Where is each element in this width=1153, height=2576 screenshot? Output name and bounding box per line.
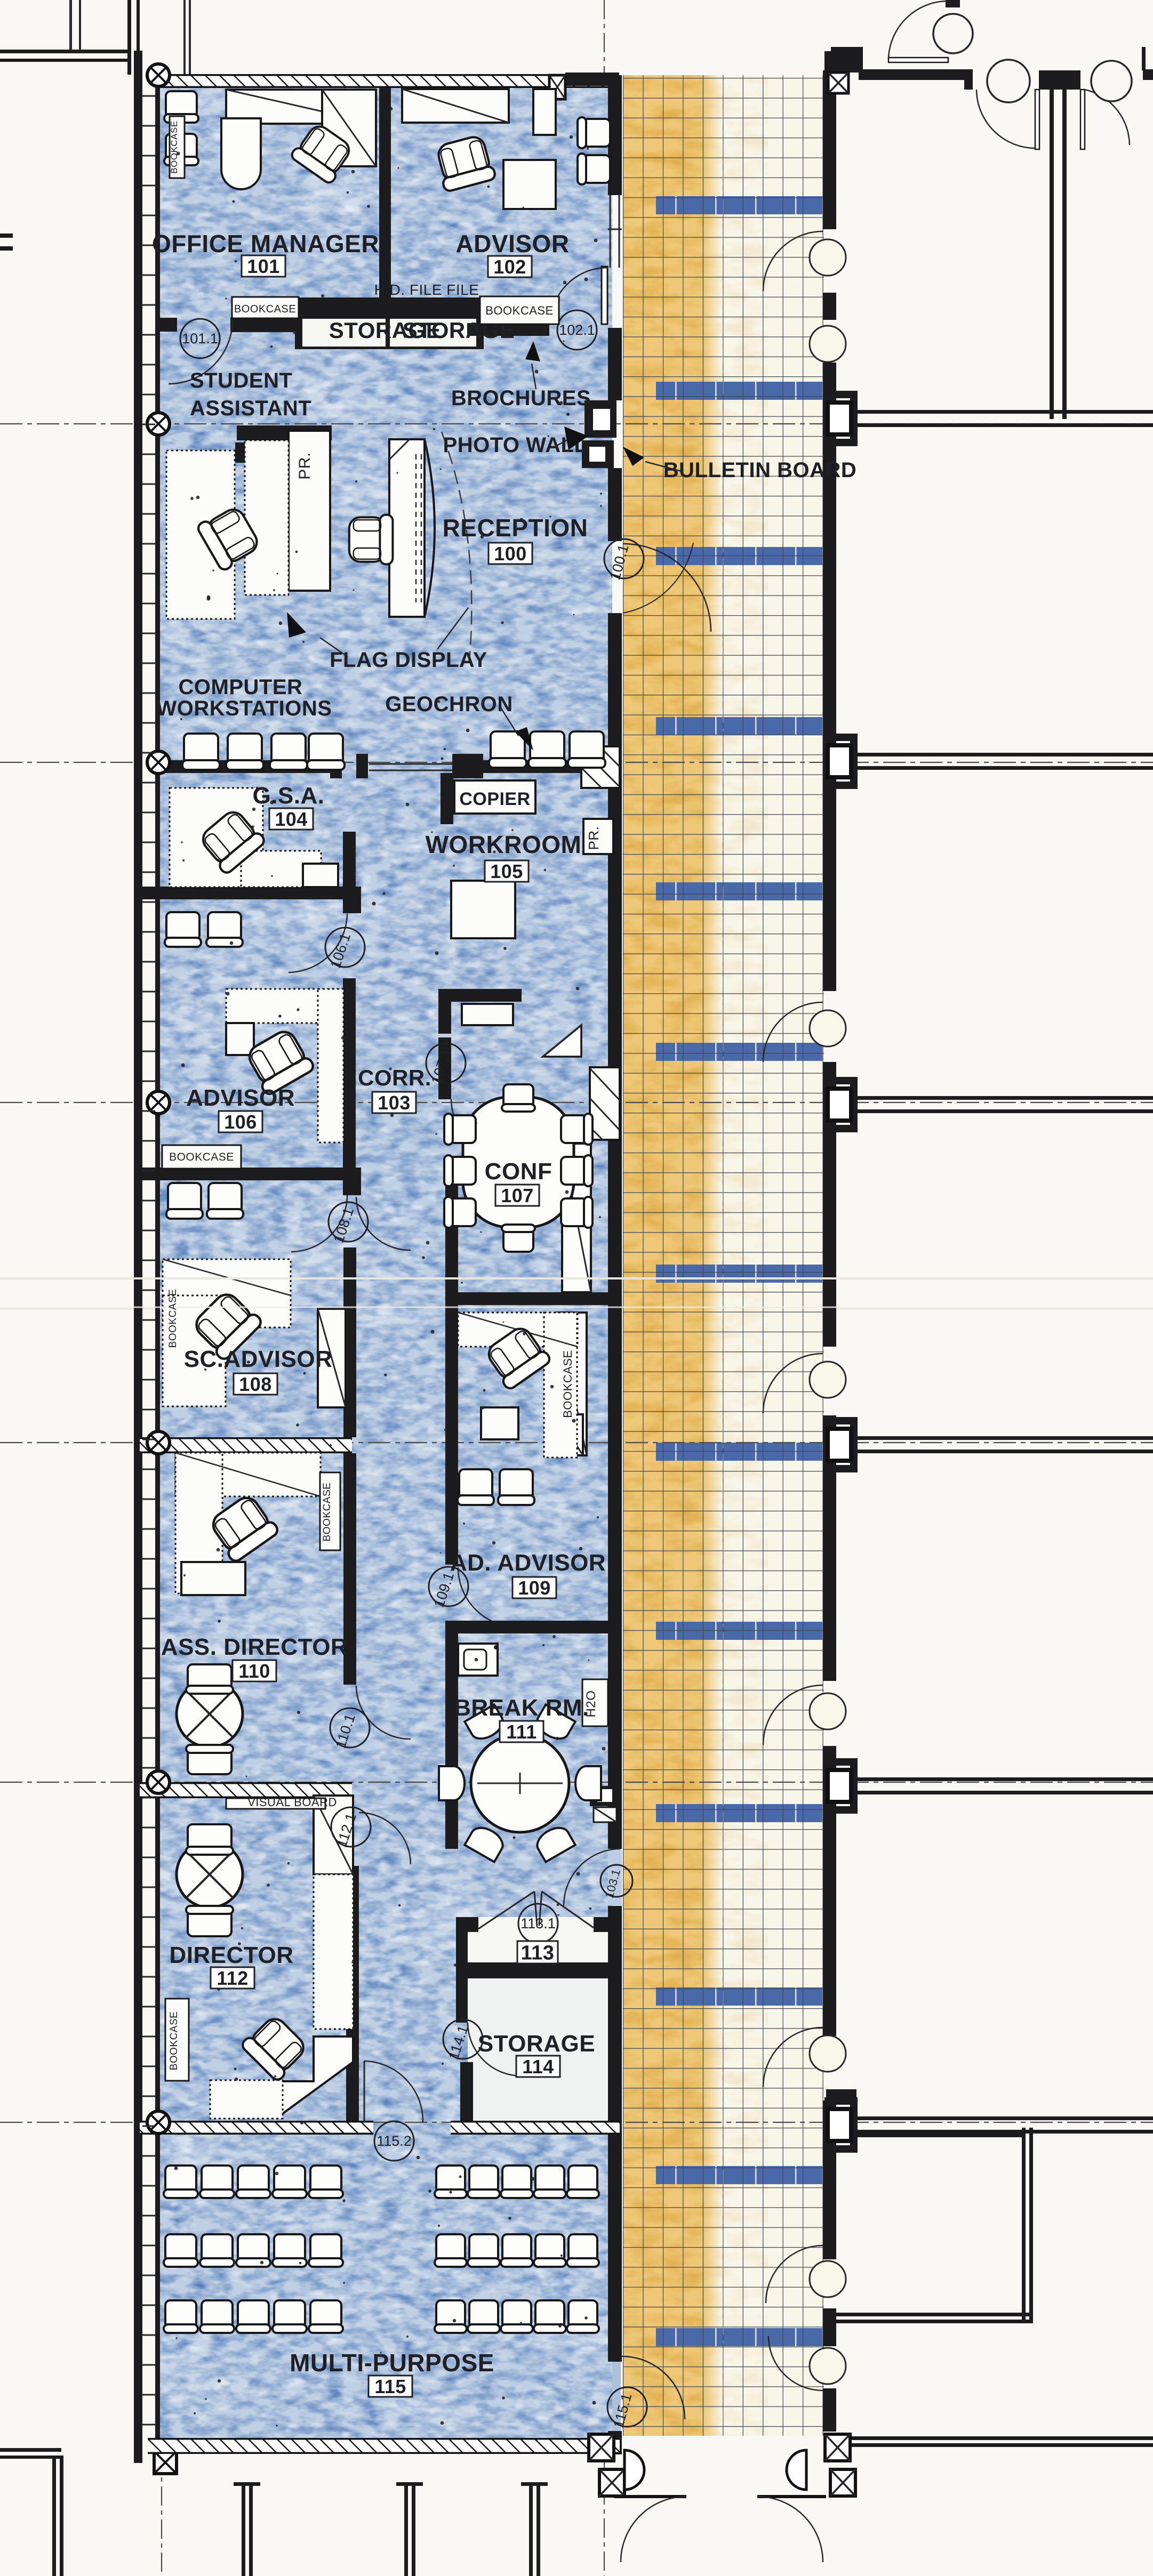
svg-text:112: 112 — [217, 1967, 249, 1989]
svg-text:BOOKCASE: BOOKCASE — [322, 1483, 333, 1542]
svg-text:STORAGE: STORAGE — [478, 2031, 595, 2057]
svg-text:101.1: 101.1 — [182, 331, 218, 347]
svg-text:ASSISTANT: ASSISTANT — [190, 397, 311, 420]
svg-text:110: 110 — [238, 1660, 270, 1682]
svg-text:WORKSTATIONS: WORKSTATIONS — [157, 697, 332, 720]
svg-text:ASS. DIRECTOR: ASS. DIRECTOR — [161, 1634, 348, 1660]
svg-text:BOOKCASE: BOOKCASE — [169, 1151, 234, 1163]
svg-text:BOOKCASE: BOOKCASE — [167, 1289, 179, 1348]
svg-text:STUDENT: STUDENT — [190, 369, 292, 392]
svg-text:113: 113 — [521, 1942, 555, 1965]
svg-text:111: 111 — [506, 1721, 537, 1743]
svg-text:BOOKCASE: BOOKCASE — [169, 2011, 180, 2071]
svg-text:115.2: 115.2 — [377, 2133, 412, 2149]
svg-text:H.D. FILE FILE: H.D. FILE FILE — [374, 281, 479, 298]
svg-text:100: 100 — [494, 543, 527, 565]
svg-text:BOOKCASE: BOOKCASE — [485, 304, 553, 317]
svg-text:113.1: 113.1 — [521, 1915, 556, 1931]
svg-text:AD. ADVISOR: AD. ADVISOR — [450, 1550, 606, 1576]
svg-text:103: 103 — [378, 1092, 411, 1114]
svg-text:DIRECTOR: DIRECTOR — [170, 1942, 294, 1968]
svg-text:BOOKCASE: BOOKCASE — [234, 303, 296, 315]
svg-text:COMPUTER: COMPUTER — [179, 675, 303, 699]
svg-text:108: 108 — [239, 1373, 272, 1395]
svg-text:COPIER: COPIER — [459, 789, 530, 809]
svg-text:GEOCHRON: GEOCHRON — [385, 693, 513, 716]
svg-text:102.1: 102.1 — [559, 322, 595, 338]
svg-text:115: 115 — [374, 2376, 406, 2397]
svg-text:BOOKCASE: BOOKCASE — [169, 120, 179, 173]
svg-text:FLAG DISPLAY: FLAG DISPLAY — [330, 648, 487, 672]
svg-text:WORKROOM: WORKROOM — [426, 831, 582, 858]
svg-text:OFFICE MANAGER: OFFICE MANAGER — [152, 230, 379, 257]
svg-text:114: 114 — [522, 2056, 554, 2078]
svg-text:G.S.A.: G.S.A. — [252, 783, 324, 809]
svg-text:MULTI-PURPOSE: MULTI-PURPOSE — [290, 2349, 494, 2377]
svg-text:RECEPTION: RECEPTION — [443, 514, 588, 542]
svg-text:BULLETIN BOARD: BULLETIN BOARD — [663, 458, 857, 482]
svg-text:PHOTO WALL: PHOTO WALL — [443, 433, 588, 457]
svg-text:CORR.: CORR. — [358, 1065, 431, 1090]
svg-text:BOOKCASE: BOOKCASE — [561, 1350, 574, 1418]
svg-text:106: 106 — [224, 1111, 257, 1133]
svg-text:109: 109 — [518, 1577, 551, 1599]
svg-text:BREAK RM.: BREAK RM. — [454, 1695, 589, 1721]
svg-text:ADVISOR: ADVISOR — [186, 1085, 295, 1111]
svg-text:ADVISOR: ADVISOR — [455, 230, 569, 257]
svg-text:SC.ADVISOR: SC.ADVISOR — [184, 1346, 333, 1372]
svg-text:CONF: CONF — [485, 1158, 553, 1185]
svg-text:VISUAL BOARD: VISUAL BOARD — [247, 1796, 337, 1809]
svg-text:101: 101 — [247, 255, 280, 277]
svg-text:102: 102 — [493, 256, 526, 278]
svg-text:107: 107 — [501, 1185, 534, 1206]
svg-text:BROCHURES: BROCHURES — [451, 387, 591, 410]
svg-text:104: 104 — [275, 808, 308, 830]
svg-text:105: 105 — [490, 860, 523, 882]
svg-text:PR.: PR. — [296, 452, 314, 480]
svg-text:PR.: PR. — [586, 826, 602, 850]
